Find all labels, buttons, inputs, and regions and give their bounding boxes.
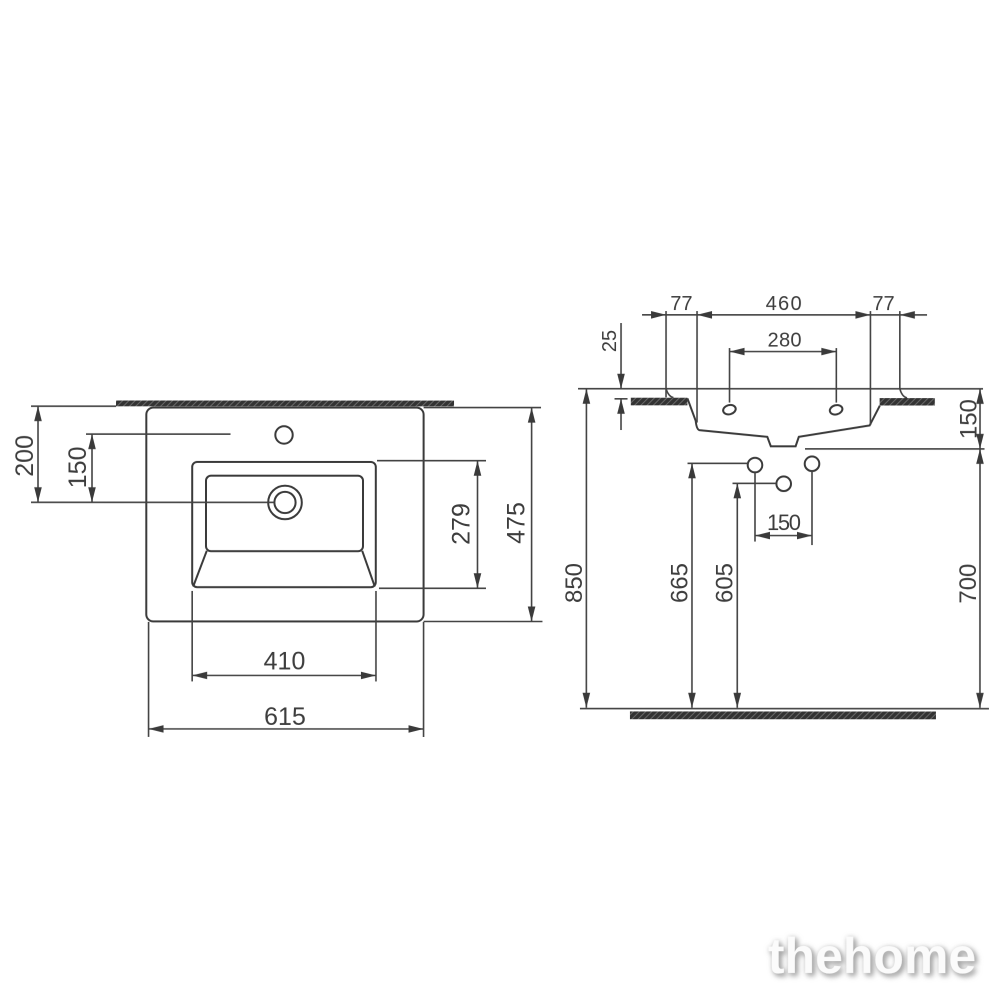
svg-text:25: 25 xyxy=(599,330,621,352)
svg-text:410: 410 xyxy=(264,647,306,675)
svg-text:77: 77 xyxy=(670,293,692,315)
svg-text:150: 150 xyxy=(767,510,801,535)
svg-text:280: 280 xyxy=(768,330,802,352)
svg-text:615: 615 xyxy=(264,703,306,731)
svg-text:665: 665 xyxy=(666,563,693,603)
svg-text:279: 279 xyxy=(447,503,475,545)
svg-text:605: 605 xyxy=(712,563,739,603)
svg-text:700: 700 xyxy=(955,564,982,604)
svg-text:150: 150 xyxy=(956,399,983,439)
svg-text:thehome: thehome xyxy=(768,928,976,984)
svg-text:150: 150 xyxy=(64,447,92,489)
svg-text:475: 475 xyxy=(502,502,530,544)
svg-text:850: 850 xyxy=(561,563,588,603)
svg-text:460: 460 xyxy=(766,293,802,315)
svg-text:200: 200 xyxy=(11,435,39,477)
svg-text:77: 77 xyxy=(872,293,894,315)
